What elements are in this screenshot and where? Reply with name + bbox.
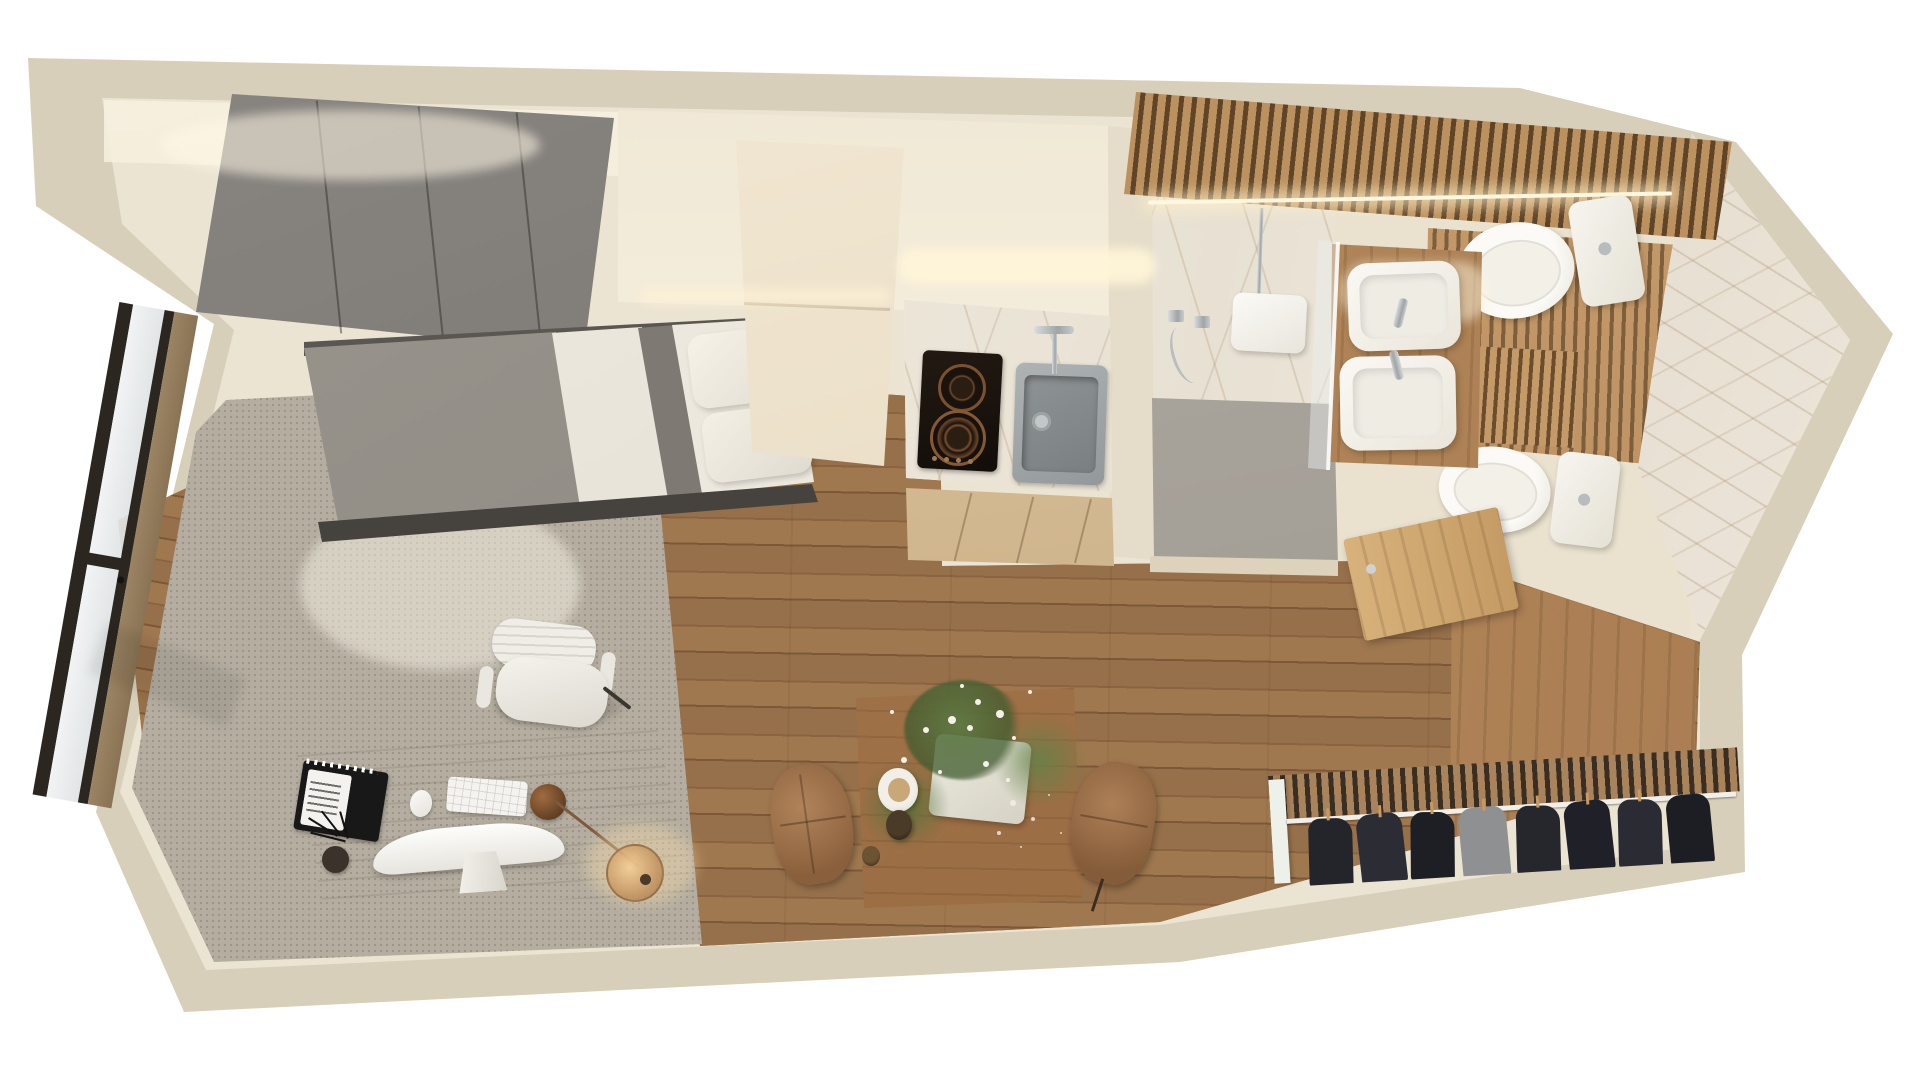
kitchen-faucet xyxy=(1052,330,1057,374)
hanger-hook xyxy=(1638,789,1642,801)
desk-lamp-head xyxy=(530,784,566,820)
cooktop-burner xyxy=(930,410,986,466)
under-cabinet-light xyxy=(898,248,1156,284)
cooktop-burner xyxy=(938,364,986,412)
bedroom-ceiling-glow xyxy=(160,110,540,180)
desk-lamp-base xyxy=(606,844,664,902)
garment xyxy=(1665,792,1716,868)
under-cabinet-light xyxy=(640,288,890,304)
garment xyxy=(1617,799,1663,870)
desk-lamp-knob xyxy=(640,874,651,885)
hand-shower-bracket xyxy=(1168,310,1184,322)
kitchen-faucet-bar xyxy=(1034,326,1074,334)
garment xyxy=(1457,805,1512,883)
keyboard xyxy=(446,776,528,816)
garment xyxy=(1355,811,1409,888)
hanger-hook xyxy=(1482,799,1486,811)
hand-shower-bracket xyxy=(1194,316,1210,328)
door-handle xyxy=(1366,564,1376,574)
sink-drain xyxy=(1032,412,1051,431)
floor-plan-scene xyxy=(0,0,1920,1067)
dark-cup xyxy=(886,810,912,840)
petal-scatter xyxy=(1010,800,1016,806)
hanger-hook xyxy=(1536,796,1540,808)
pen-cup xyxy=(322,846,349,873)
hanger-hook xyxy=(1586,792,1590,804)
latte-surface xyxy=(888,778,910,802)
candle-holder xyxy=(862,846,880,866)
garment xyxy=(1410,812,1455,882)
garment xyxy=(1562,798,1616,875)
garment xyxy=(1516,805,1562,876)
hanger-hook xyxy=(1378,805,1382,817)
cooktop-controls xyxy=(932,456,937,461)
flowers xyxy=(948,716,956,724)
rain-shower-head xyxy=(1231,292,1308,354)
hanger-hook xyxy=(1430,802,1434,814)
garment xyxy=(1308,818,1354,888)
hanger-hook xyxy=(1326,808,1330,820)
foliage xyxy=(990,716,1090,806)
